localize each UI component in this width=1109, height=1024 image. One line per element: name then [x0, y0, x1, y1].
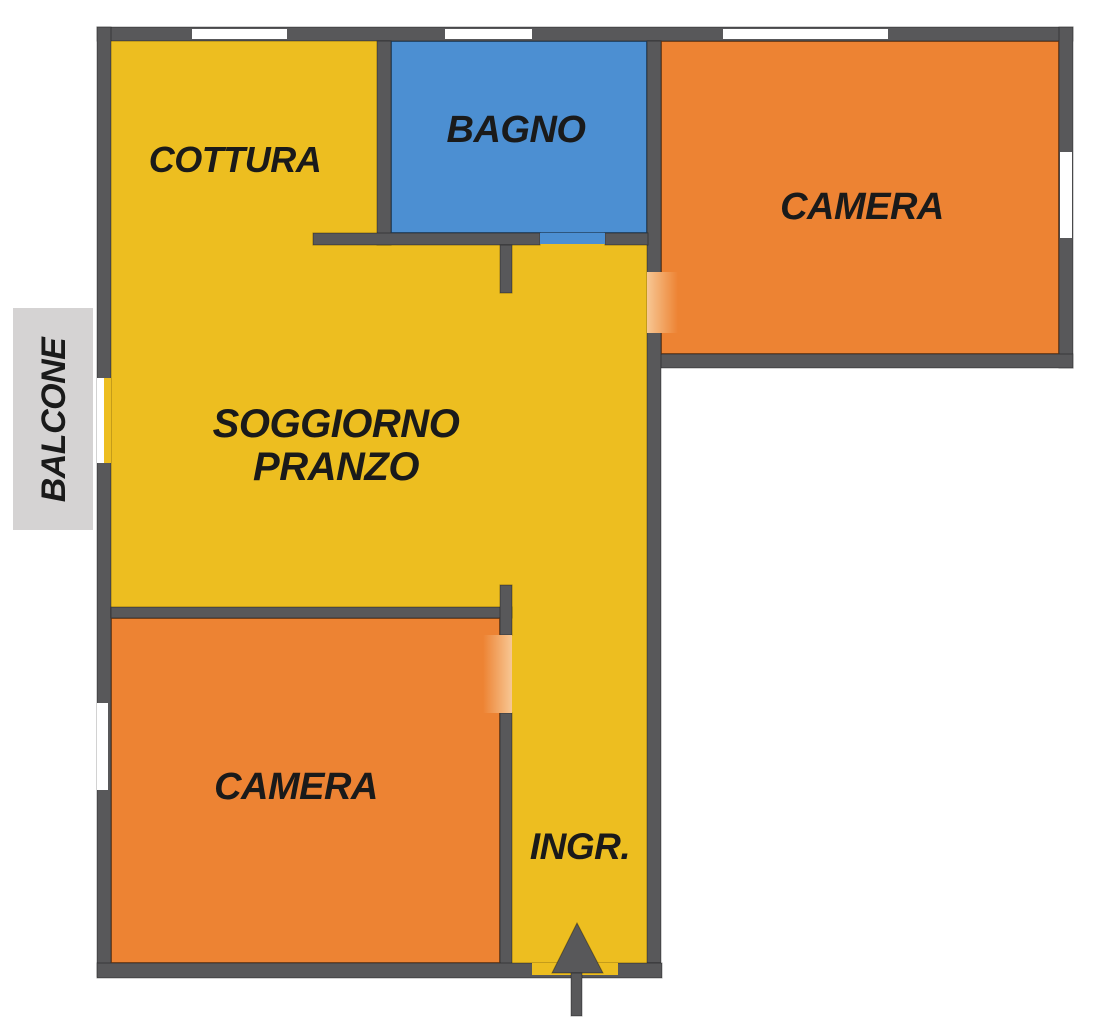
camera-bottom-door-opening	[483, 635, 512, 713]
window-camera-bottom-left	[97, 703, 108, 790]
wall-bagno-south-right	[605, 233, 648, 245]
window-bagno-top	[445, 29, 532, 39]
wall-stub-camera-door	[500, 585, 512, 635]
wall-camera-bottom-right	[500, 713, 512, 977]
wall-corridor-right	[647, 41, 661, 963]
label-soggiorno-line2: PRANZO	[253, 445, 419, 489]
label-soggiorno-line1: SOGGIORNO	[213, 402, 460, 446]
window-camera-right	[1060, 152, 1072, 238]
window-cottura-top	[192, 29, 287, 39]
bagno-door-opening	[540, 233, 605, 244]
label-camera-bottom: CAMERA	[214, 766, 378, 808]
entrance-arrow-tail	[571, 973, 582, 1016]
label-ingresso: INGR.	[530, 826, 630, 867]
window-camera-top	[723, 29, 888, 39]
wall-bagno-south-left	[313, 233, 540, 245]
camera-top-door-opening	[647, 272, 678, 333]
balcony-door-threshold	[104, 378, 111, 463]
floor-plan: COTTURA BAGNO CAMERA SOGGIORNO PRANZO CA…	[0, 0, 1109, 1024]
wall-outer-left	[97, 27, 111, 977]
label-cottura: COTTURA	[149, 139, 321, 180]
label-bagno: BAGNO	[447, 109, 586, 151]
wall-cottura-bagno	[377, 41, 391, 245]
wall-stub-bagno-door	[500, 245, 512, 293]
wall-camera-top-south	[648, 354, 1073, 368]
label-balcone: BALCONE	[35, 336, 73, 502]
label-camera-top: CAMERA	[780, 186, 944, 228]
wall-soggiorno-camera	[111, 607, 512, 618]
